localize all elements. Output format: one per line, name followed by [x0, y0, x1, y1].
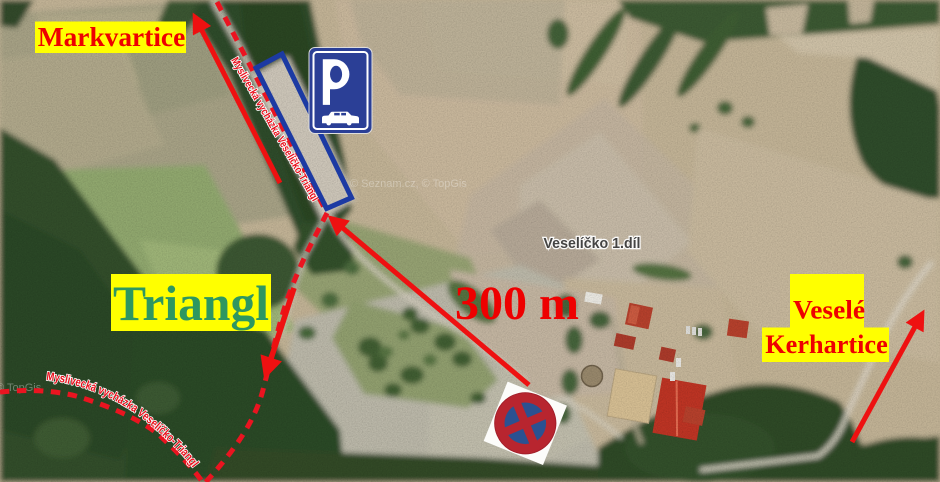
svg-text:Veselé: Veselé — [793, 295, 865, 325]
svg-text:Veselíčko 1.díl: Veselíčko 1.díl — [544, 235, 641, 252]
svg-text:Triangl: Triangl — [113, 276, 269, 331]
svg-text:© Seznam.cz, © TopGis: © Seznam.cz, © TopGis — [350, 178, 467, 190]
svg-text:Markvartice: Markvartice — [38, 22, 186, 52]
svg-text:Kerhartice: Kerhartice — [765, 330, 888, 359]
svg-text:300 m: 300 m — [455, 277, 579, 330]
